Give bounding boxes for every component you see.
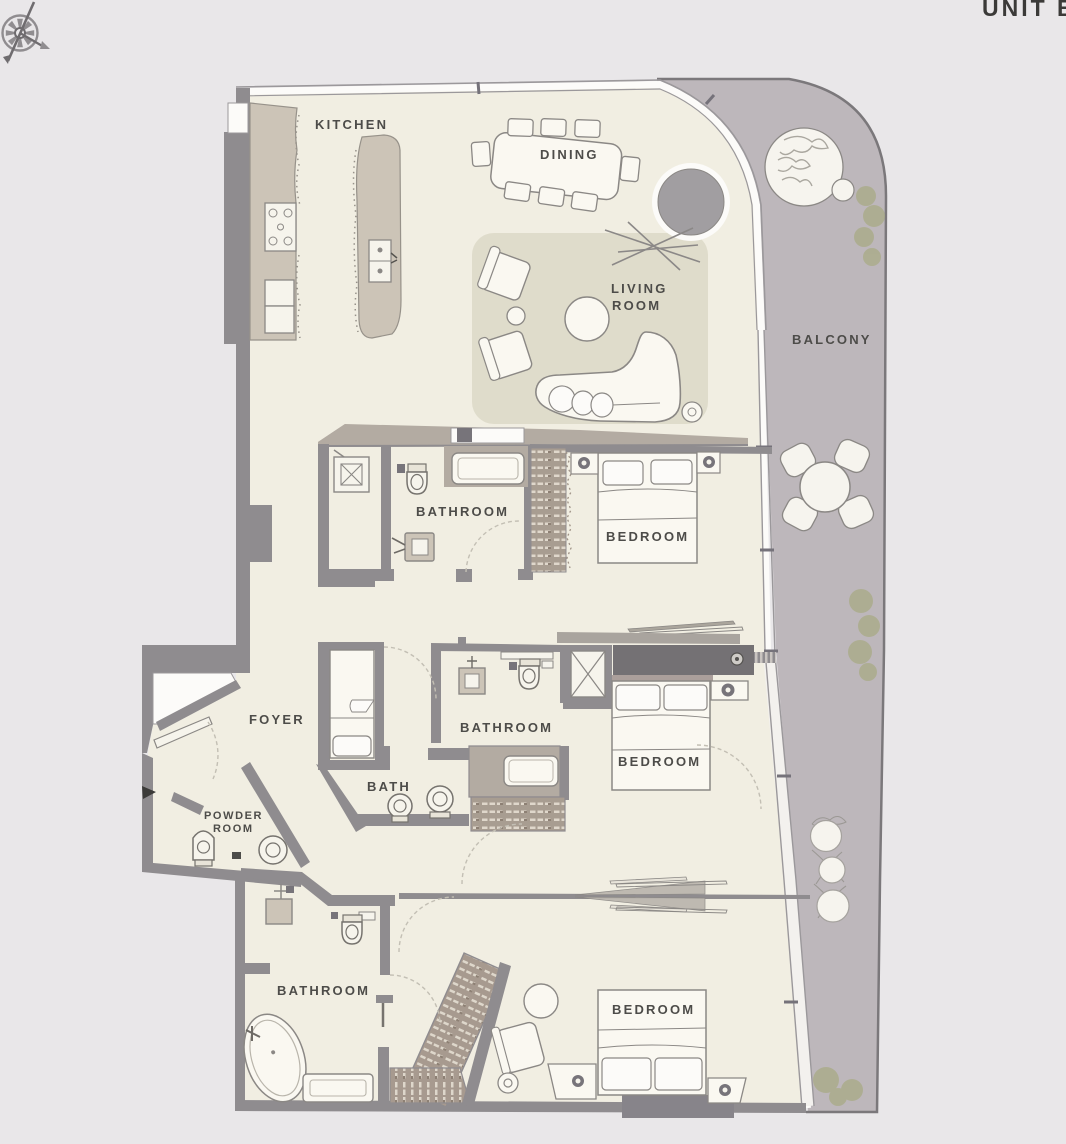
svg-text:BATH: BATH bbox=[367, 779, 411, 794]
svg-text:ROOM: ROOM bbox=[213, 823, 254, 835]
svg-text:BATHROOM: BATHROOM bbox=[460, 720, 553, 735]
svg-text:BALCONY: BALCONY bbox=[792, 332, 872, 347]
svg-text:UNIT B: UNIT B bbox=[982, 0, 1066, 21]
svg-text:ROOM: ROOM bbox=[612, 298, 661, 313]
svg-text:BATHROOM: BATHROOM bbox=[416, 504, 509, 519]
svg-text:KITCHEN: KITCHEN bbox=[315, 117, 388, 132]
svg-text:DINING: DINING bbox=[540, 147, 599, 162]
svg-text:FOYER: FOYER bbox=[249, 712, 305, 727]
svg-text:BEDROOM: BEDROOM bbox=[618, 754, 701, 769]
svg-text:POWDER: POWDER bbox=[204, 810, 263, 822]
svg-text:BEDROOM: BEDROOM bbox=[606, 529, 689, 544]
svg-text:BATHROOM: BATHROOM bbox=[277, 983, 370, 998]
svg-text:BEDROOM: BEDROOM bbox=[612, 1002, 695, 1017]
svg-text:LIVING: LIVING bbox=[611, 281, 668, 296]
